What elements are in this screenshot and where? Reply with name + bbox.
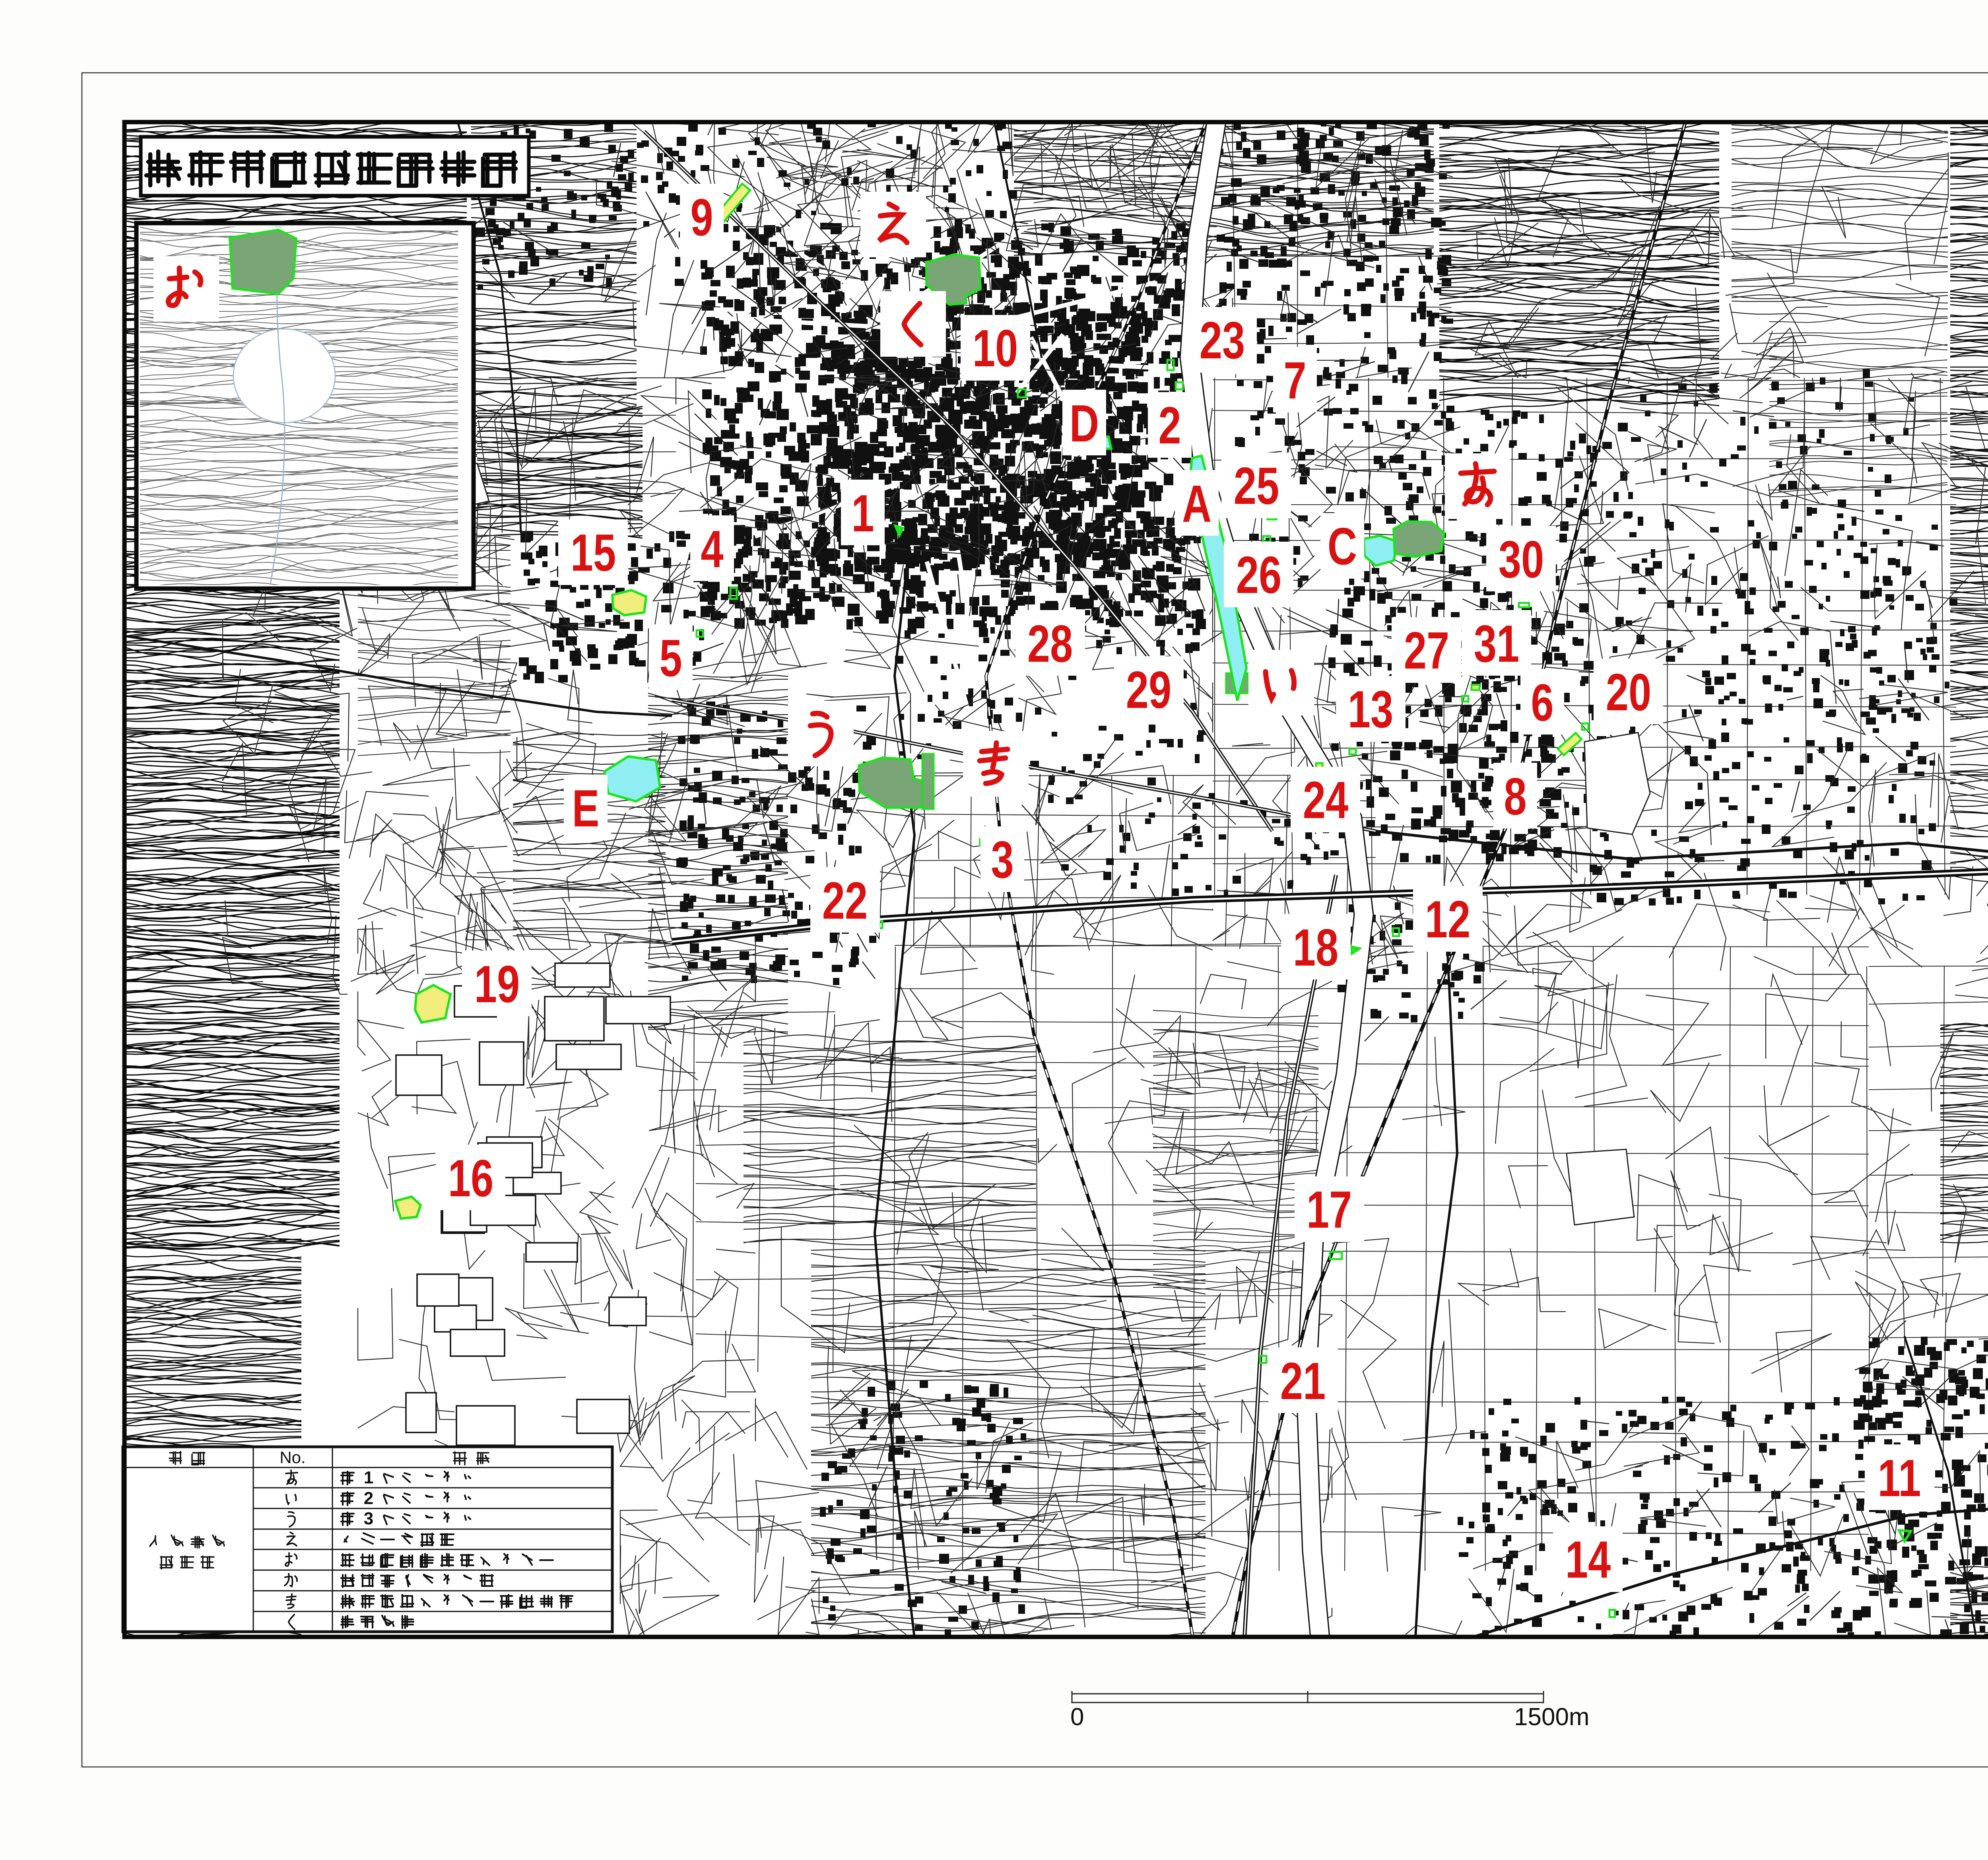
svg-text:14: 14	[1565, 1531, 1611, 1589]
svg-text:15: 15	[571, 524, 616, 582]
svg-text:6: 6	[1531, 674, 1553, 732]
svg-text:2: 2	[364, 1489, 373, 1508]
svg-text:3: 3	[364, 1509, 373, 1528]
svg-text:16: 16	[448, 1149, 494, 1208]
svg-text:No.: No.	[280, 1448, 305, 1467]
svg-text:11: 11	[1878, 1449, 1921, 1508]
svg-text:2: 2	[1158, 396, 1181, 455]
svg-text:7: 7	[1283, 352, 1306, 410]
svg-text:17: 17	[1307, 1181, 1352, 1239]
svg-text:29: 29	[1126, 661, 1172, 719]
svg-text:20: 20	[1606, 663, 1652, 722]
svg-text:18: 18	[1293, 919, 1339, 977]
svg-text:23: 23	[1200, 311, 1245, 370]
svg-text:22: 22	[822, 872, 868, 930]
svg-text:13: 13	[1348, 680, 1394, 739]
svg-text:1: 1	[364, 1468, 373, 1487]
svg-text:8: 8	[1504, 768, 1526, 826]
svg-text:10: 10	[973, 319, 1018, 378]
svg-text:9: 9	[690, 189, 713, 247]
svg-text:24: 24	[1303, 771, 1349, 830]
svg-text:30: 30	[1499, 531, 1544, 589]
svg-text:1: 1	[851, 484, 874, 543]
svg-text:5: 5	[659, 629, 682, 688]
svg-text:26: 26	[1236, 546, 1282, 604]
svg-text:12: 12	[1425, 890, 1471, 949]
svg-text:C: C	[1328, 517, 1357, 576]
svg-text:21: 21	[1280, 1352, 1326, 1411]
svg-text:19: 19	[474, 955, 520, 1014]
svg-text:0: 0	[1070, 1703, 1084, 1731]
svg-text:3: 3	[991, 831, 1013, 889]
svg-text:25: 25	[1234, 457, 1279, 515]
svg-text:28: 28	[1027, 615, 1073, 673]
svg-text:1500m: 1500m	[1514, 1703, 1590, 1731]
svg-text:A: A	[1182, 475, 1211, 533]
svg-text:27: 27	[1404, 622, 1450, 680]
svg-text:31: 31	[1474, 615, 1520, 673]
svg-text:D: D	[1070, 395, 1099, 453]
svg-text:4: 4	[701, 520, 723, 579]
svg-text:E: E	[572, 779, 600, 838]
